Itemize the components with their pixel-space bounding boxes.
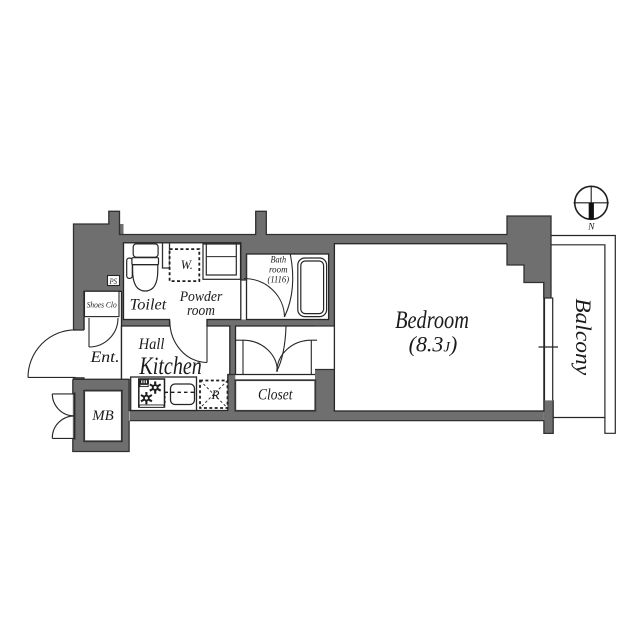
svg-text:W.: W.	[181, 258, 193, 272]
svg-text:(8.3J): (8.3J)	[409, 332, 458, 357]
svg-text:Hall: Hall	[138, 336, 165, 353]
svg-text:Balcony: Balcony	[571, 298, 596, 375]
svg-text:Shoes Clo: Shoes Clo	[87, 301, 117, 310]
svg-text:N: N	[587, 223, 595, 233]
svg-text:MB: MB	[91, 408, 113, 424]
svg-text:Ent.: Ent.	[89, 349, 119, 366]
svg-text:(1116): (1116)	[268, 275, 290, 285]
svg-text:Toilet: Toilet	[130, 297, 167, 314]
svg-text:R: R	[211, 387, 220, 402]
svg-text:Closet: Closet	[258, 387, 293, 404]
svg-text:room: room	[269, 265, 288, 275]
svg-text:Bath: Bath	[271, 255, 287, 265]
svg-text:Kitchen: Kitchen	[139, 353, 202, 380]
svg-text:PS: PS	[109, 277, 117, 286]
svg-text:room: room	[187, 303, 215, 319]
svg-text:Bedroom: Bedroom	[395, 307, 469, 334]
